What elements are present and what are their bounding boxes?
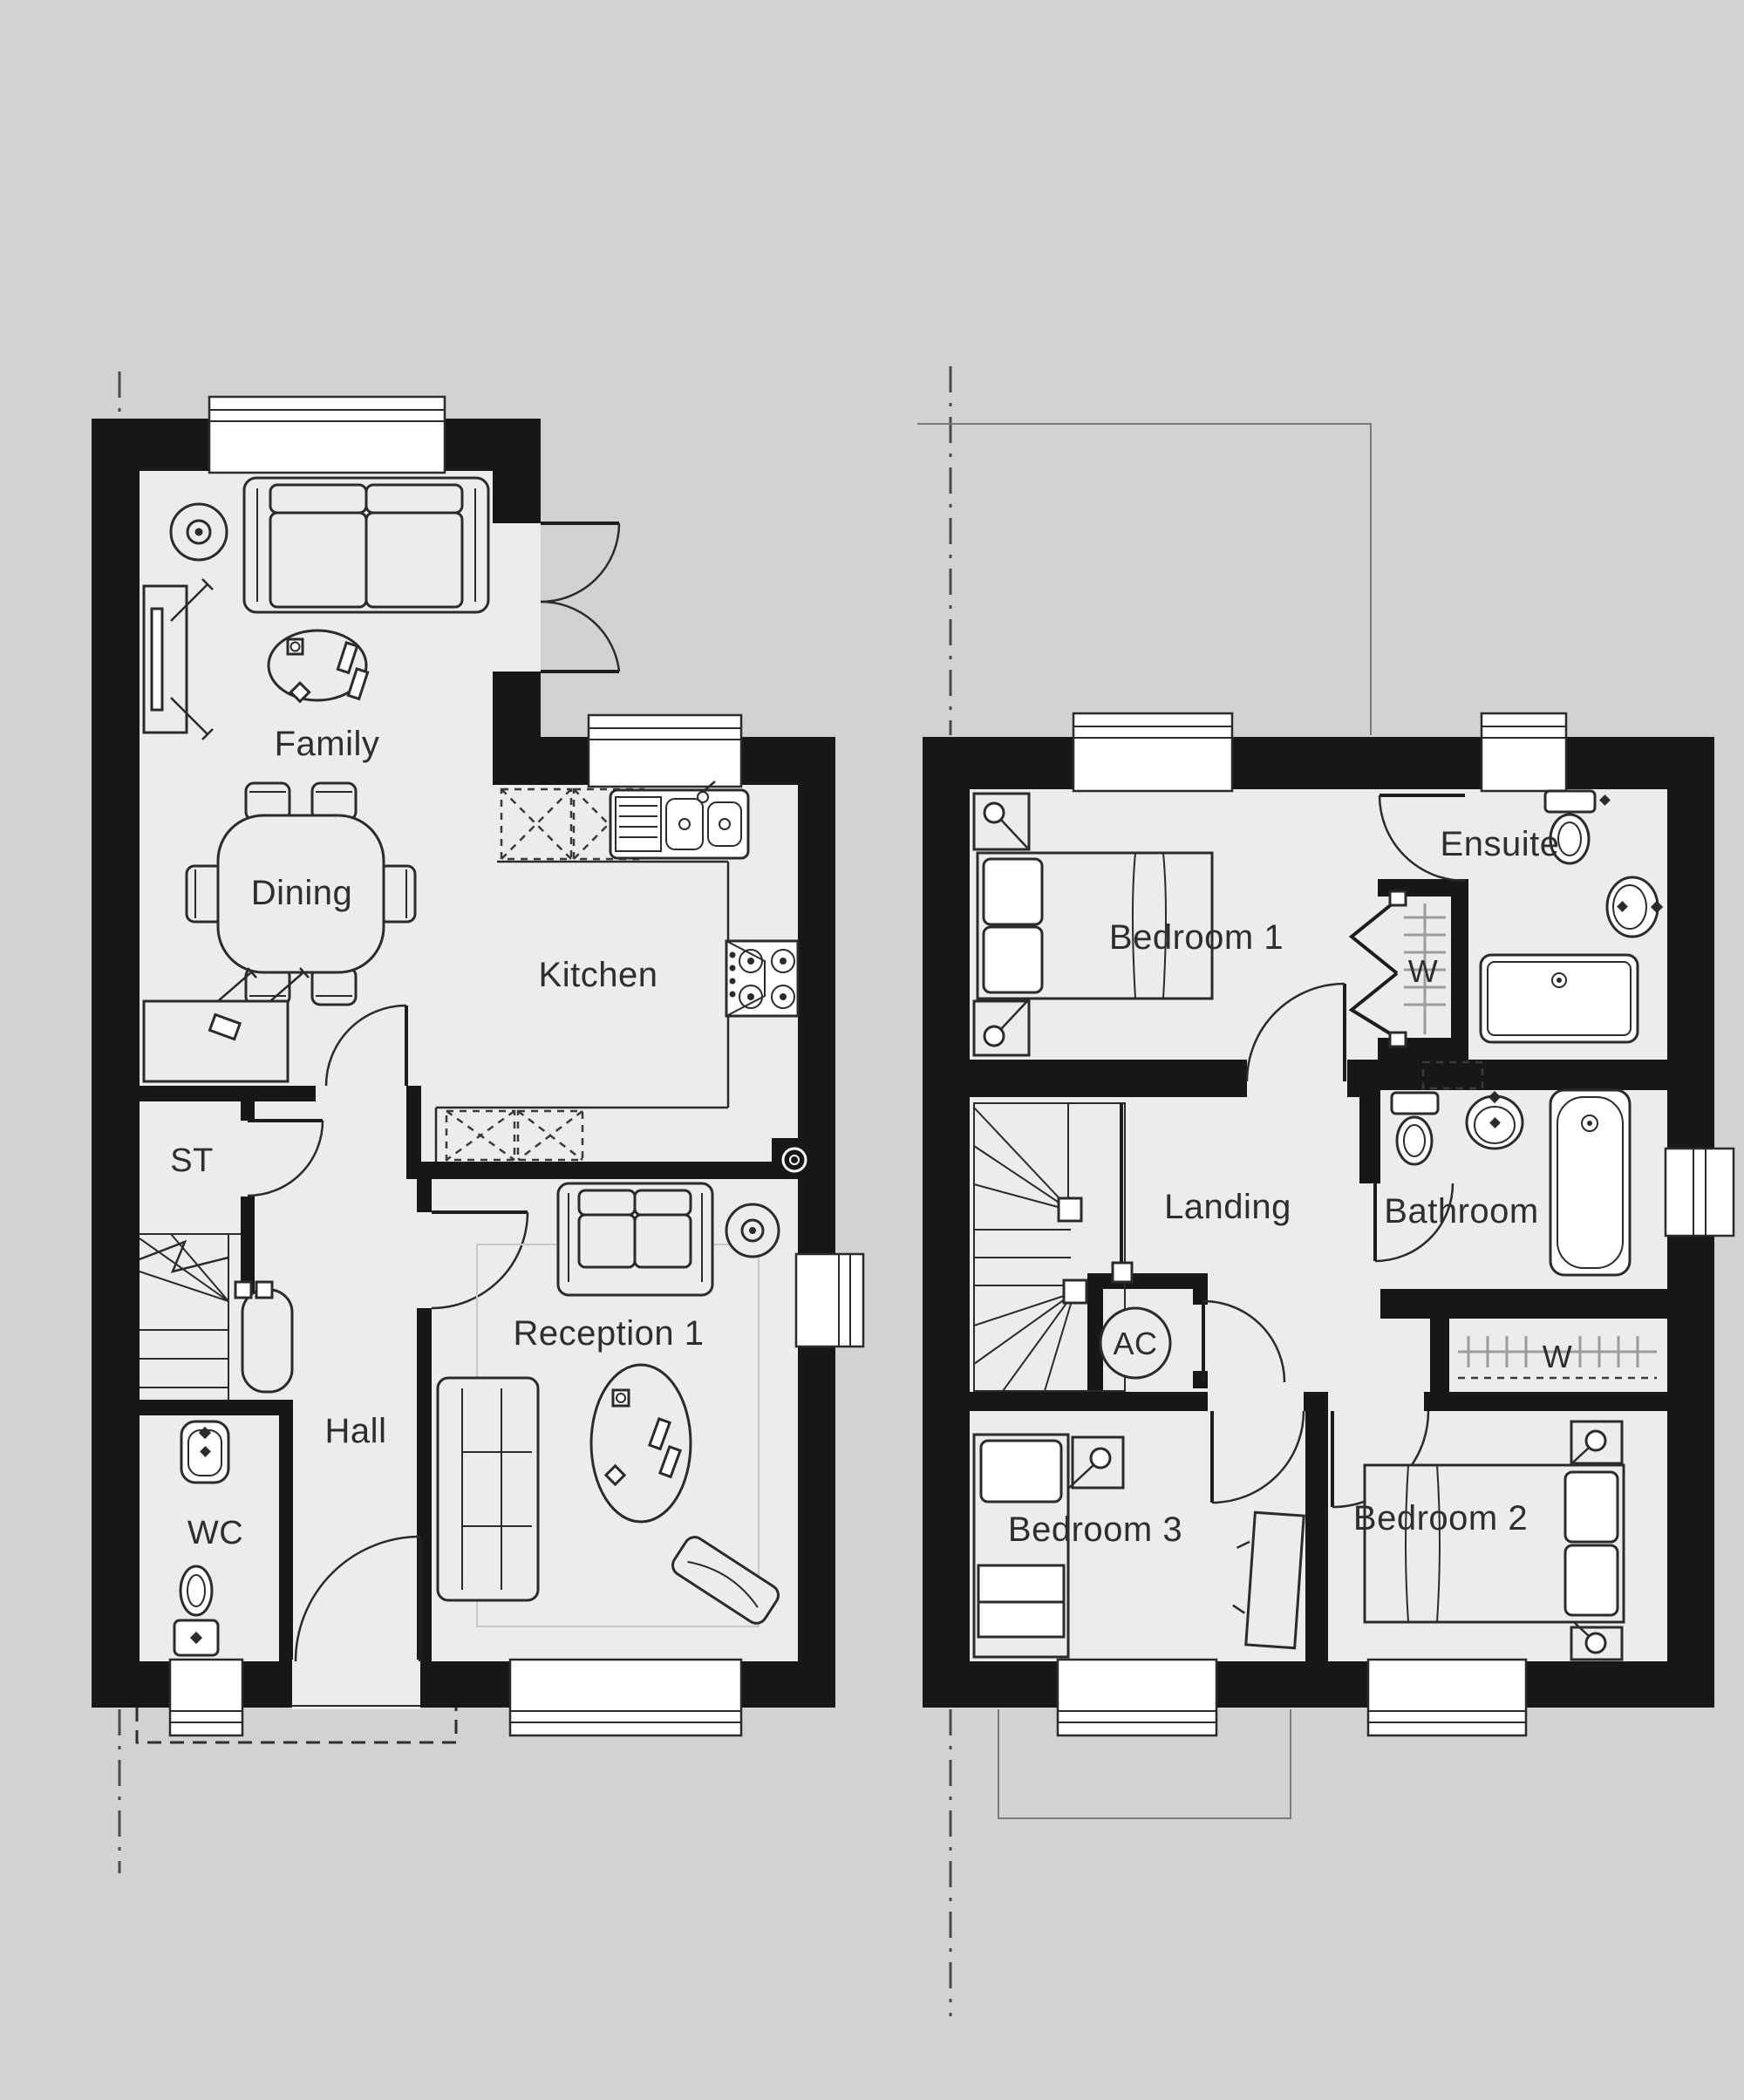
room-label-ensuite: Ensuite <box>1441 825 1560 863</box>
room-label-st: ST <box>170 1142 214 1179</box>
room-label-kitchen: Kitchen <box>539 956 658 994</box>
room-label-dining: Dining <box>251 874 352 912</box>
ground-floor-plan: Family Dining Kitchen ST Hall WC Recepti… <box>92 372 863 1873</box>
floorplan-page: Family Dining Kitchen ST Hall WC Recepti… <box>0 0 1744 2100</box>
wc-window <box>170 1660 242 1735</box>
room-label-wc: WC <box>187 1515 243 1551</box>
room-label-ac: AC <box>1113 1326 1157 1361</box>
floorplan-drawing: Family Dining Kitchen ST Hall WC Recepti… <box>0 0 1744 2100</box>
room-label-bedroom3: Bedroom 3 <box>1008 1510 1182 1549</box>
stair-handrail <box>242 1290 292 1392</box>
room-label-reception: Reception 1 <box>514 1314 705 1353</box>
reception-sofa-left-icon <box>438 1378 538 1600</box>
kitchen-window <box>589 715 741 787</box>
ensuite-window <box>1482 713 1566 791</box>
boiler-flue-icon <box>772 1138 818 1179</box>
room-label-bathroom: Bathroom <box>1384 1192 1538 1231</box>
family-sofa-icon <box>244 478 488 612</box>
family-window <box>209 397 445 473</box>
reception-window-east <box>796 1254 863 1347</box>
french-doors-swing <box>541 523 619 672</box>
room-label-wardrobe-ensuite: W <box>1408 953 1438 989</box>
room-label-bedroom1: Bedroom 1 <box>1109 918 1284 957</box>
shower-icon <box>1481 955 1638 1042</box>
reception-table-icon <box>591 1365 691 1522</box>
bathroom-window <box>1666 1149 1734 1236</box>
bedroom2-window <box>1368 1660 1526 1735</box>
bedroom1-window <box>1073 713 1232 791</box>
ceiling-light-icon <box>171 504 227 560</box>
hob-icon <box>726 941 798 1016</box>
coffee-table-icon <box>269 631 368 701</box>
reception-sofa-top-icon <box>558 1183 712 1295</box>
room-label-wardrobe-landing: W <box>1543 1339 1572 1374</box>
first-floor-plan: Bedroom 1 Ensuite W Landing Bathroom AC … <box>917 366 1734 2016</box>
room-label-hall: Hall <box>325 1412 387 1450</box>
bath-icon <box>1550 1090 1630 1275</box>
reception-window-south <box>510 1660 741 1735</box>
front-door-opening <box>292 1660 420 1709</box>
room-label-family: Family <box>275 725 380 763</box>
roof-outline <box>917 424 1371 735</box>
bedroom3-window <box>1058 1660 1216 1735</box>
wc-basin-icon <box>181 1422 228 1483</box>
room-label-landing: Landing <box>1164 1188 1291 1226</box>
room-label-bedroom2: Bedroom 2 <box>1353 1499 1528 1537</box>
ceiling-light-icon <box>726 1204 779 1257</box>
kitchen-sink-icon <box>610 781 748 858</box>
